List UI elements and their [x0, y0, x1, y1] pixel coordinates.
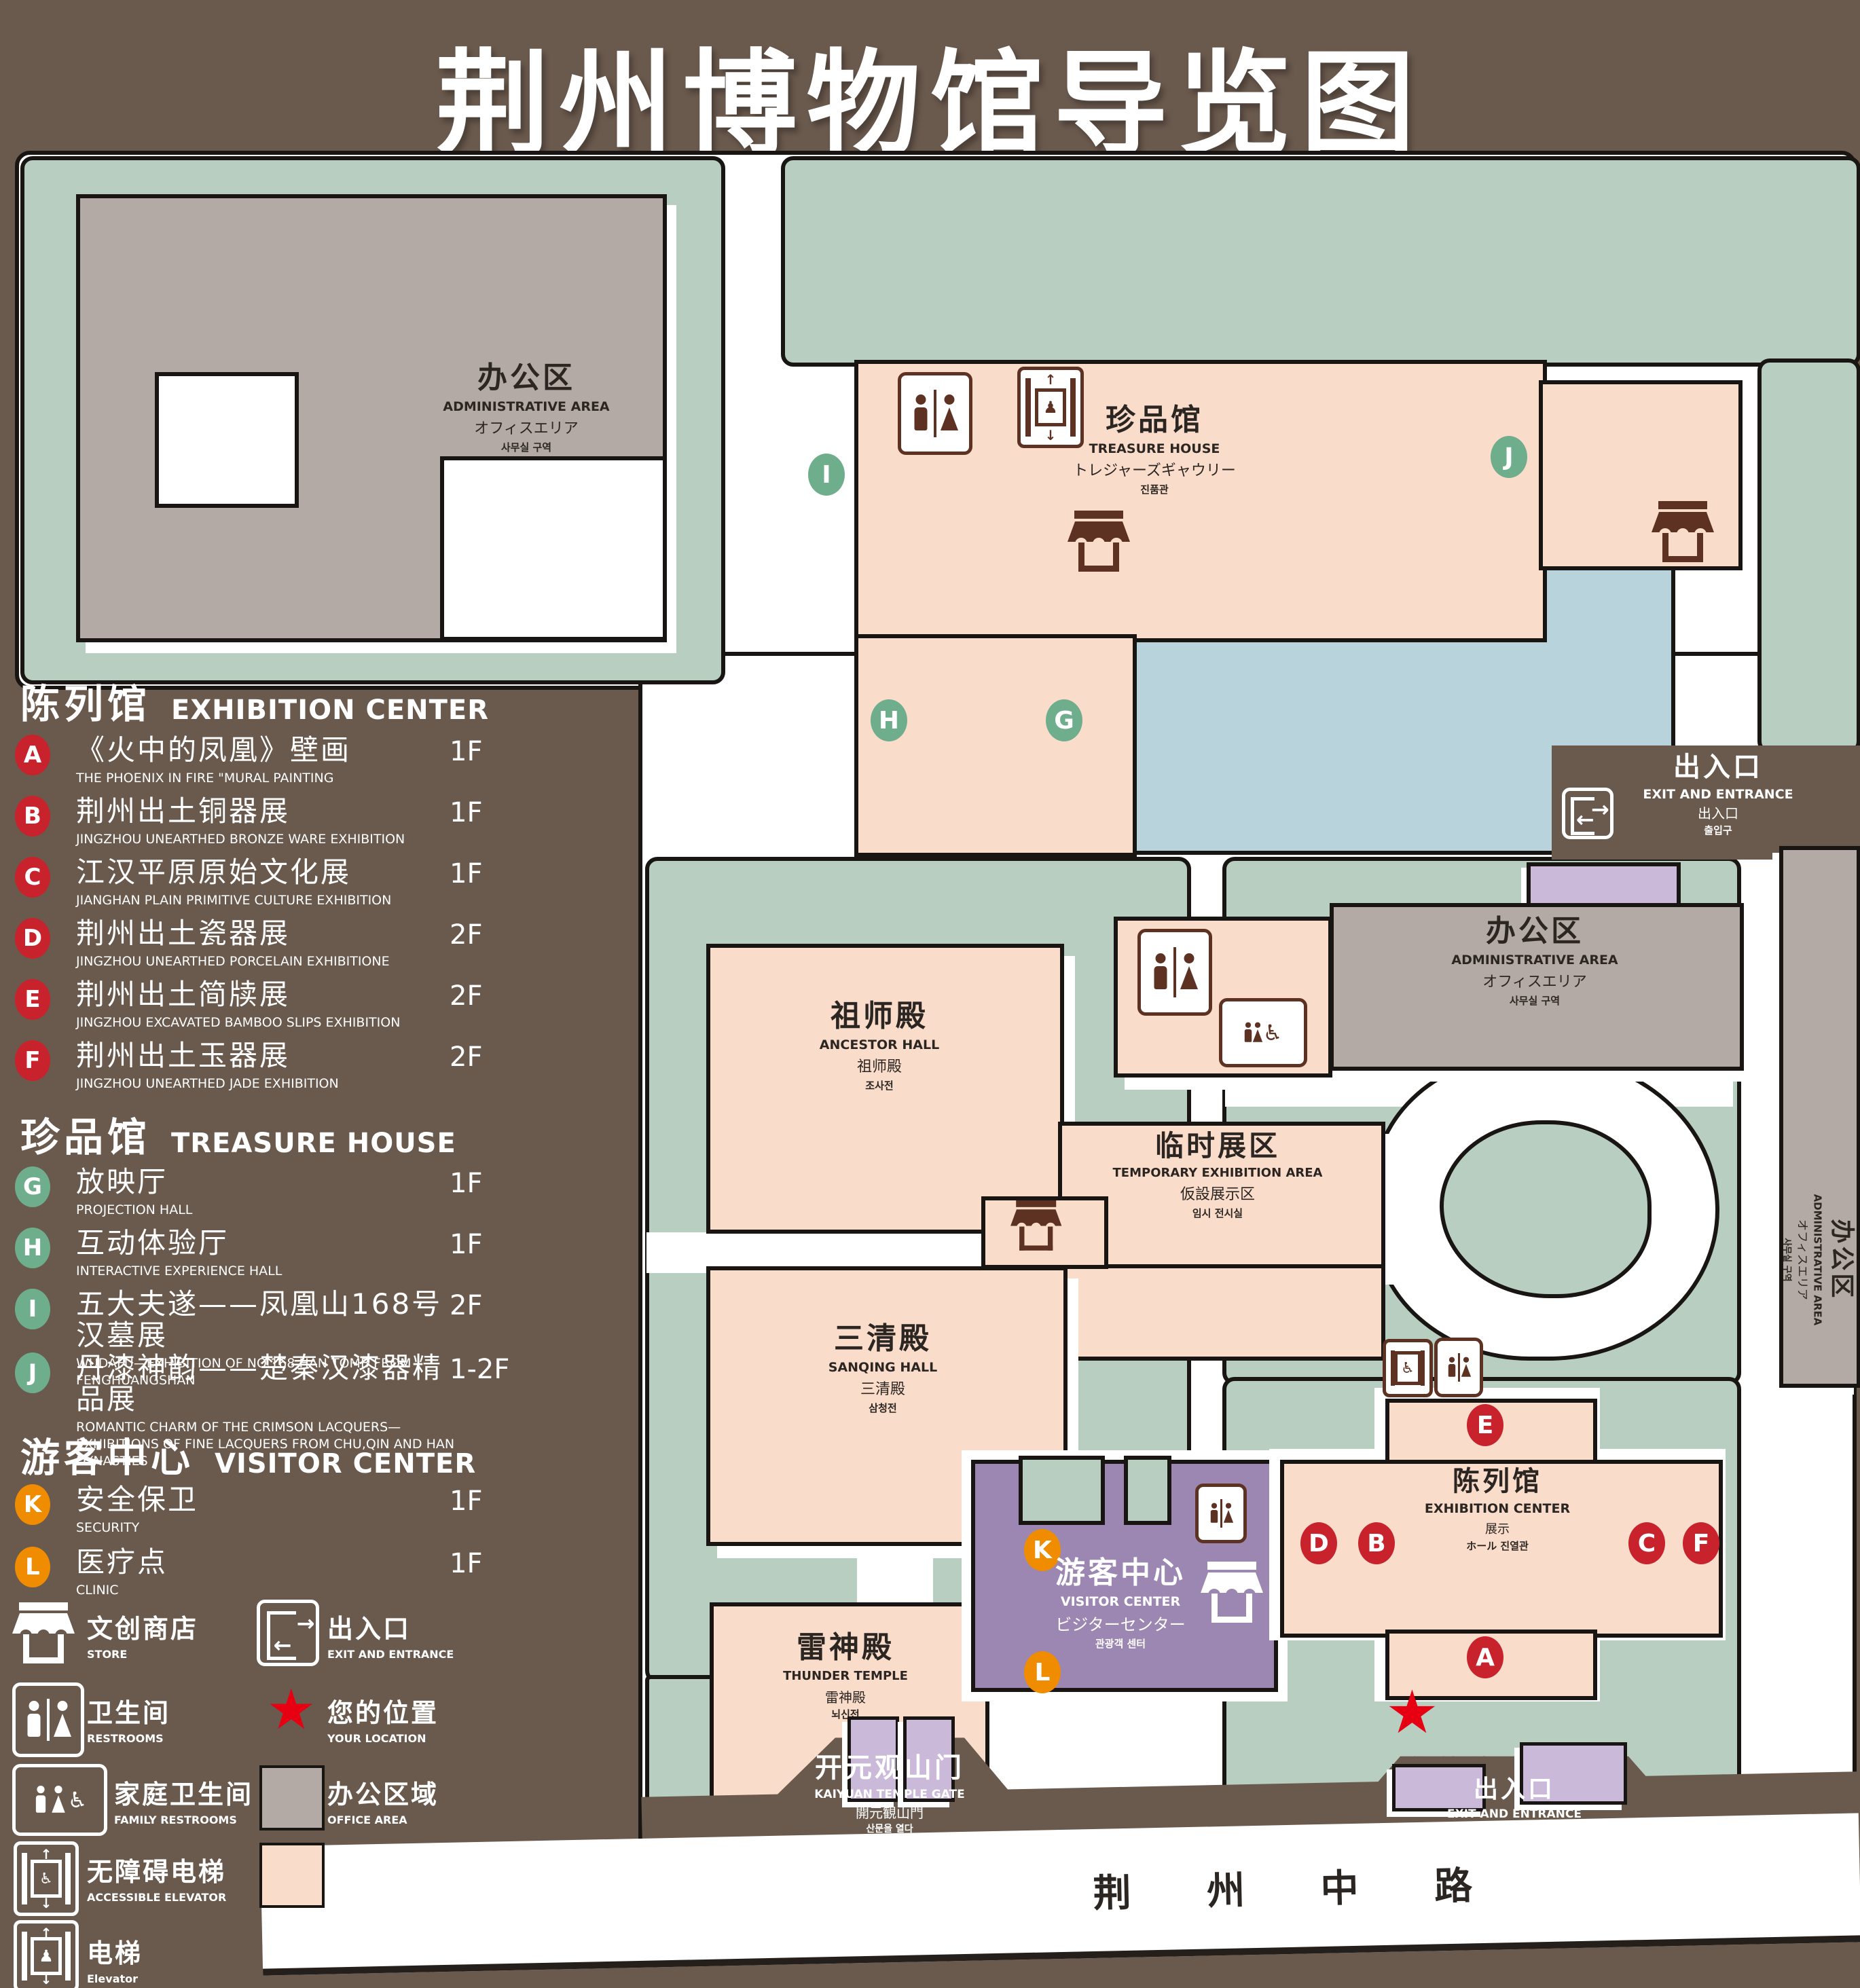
family-restrooms-legend-icon: ♿ [12, 1764, 107, 1836]
store-icon [1201, 1562, 1263, 1623]
temporary-exhibition-label: 临时展区 TEMPORARY EXHIBITION AREA 仮設展示区 임시 … [1065, 1128, 1370, 1219]
map-marker-e: E [1467, 1404, 1503, 1446]
elevator-icon: ↑♟↓ [1017, 367, 1084, 448]
family-restrooms-legend-label: 家庭卫生间FAMILY RESTROOMS [114, 1773, 253, 1826]
badge-h: H [15, 1228, 50, 1268]
map-marker-d: D [1300, 1522, 1337, 1564]
display-area-legend-label: 展示区域DISPLAY AREA [327, 1851, 439, 1904]
exit-legend-icon: →← [257, 1600, 319, 1666]
map-marker-i: I [808, 454, 845, 496]
sanqing-hall-label: 三清殿 SANQING HALL 三清殿 삼청전 [727, 1321, 1039, 1414]
store-icon [1010, 1200, 1061, 1251]
badge-a: A [15, 735, 50, 775]
office-area-swatch [259, 1765, 325, 1830]
man-figure-icon [913, 394, 929, 432]
map-marker-a: A [1467, 1636, 1503, 1678]
admin-center-right-label: 办公区 ADMINISTRATIVE AREA オフィスエリア 사무실 구역 [1379, 913, 1691, 1007]
admin-right-strip-label: 办公区 ADMINISTRATIVE AREA オフィスエリア 사무실 구역 [1781, 1117, 1857, 1402]
legend-item-c: C 江汉平原原始文化展JIANGHAN PLAIN PRIMITIVE CULT… [15, 857, 517, 909]
legend-item-h: H 互动体验厅INTERACTIVE EXPERIENCE HALL 1F [15, 1228, 517, 1280]
display-area-swatch [259, 1843, 325, 1908]
restrooms-icon [1195, 1484, 1247, 1543]
restrooms-legend-icon [12, 1682, 84, 1757]
legend-item-g: G 放映厅PROJECTION HALL 1F [15, 1166, 517, 1219]
map-marker-h: H [871, 699, 907, 741]
your-location-legend-label: 您的位置YOUR LOCATION [327, 1692, 439, 1745]
ancestor-hall-label: 祖师殿 ANCESTOR HALL 祖师殿 조사전 [723, 998, 1036, 1092]
restrooms-icon [898, 372, 972, 455]
admin-top-left-label: 办公区 ADMINISTRATIVE AREA オフィスエリア 사무실 구역 [370, 360, 682, 454]
legend-item-b: B 荆州出土铜器展JINGZHOU UNEARTHED BRONZE WARE … [15, 796, 517, 848]
family-restroom-icon: ♿ [1219, 998, 1307, 1067]
badge-d: D [15, 918, 50, 959]
map-marker-l: L [1024, 1651, 1061, 1693]
map-marker-f: F [1683, 1522, 1719, 1564]
legend-item-k: K 安全保卫SECURITY 1F [15, 1484, 517, 1536]
accessible-elevator-legend-label: 无障碍电梯ACCESSIBLE ELEVATOR [87, 1851, 226, 1904]
your-location-legend-icon: ★ [266, 1682, 316, 1738]
store-legend-icon [12, 1602, 75, 1663]
restrooms-icon [1434, 1338, 1483, 1397]
green-zone-top-right [781, 156, 1860, 367]
legend-item-l: L 医疗点CLINIC 1F [15, 1547, 517, 1599]
guide-map-canvas: 荆州博物馆导览图 GUIDE MAP OF JINGZHOU MUSEUM 办公… [0, 0, 1860, 1988]
legend-section-visitor-center: 游客中心VISITOR CENTER [20, 1426, 476, 1483]
legend-item-a: A 《火中的凤凰》壁画THE PHOENIX IN FIRE "MURAL PA… [15, 735, 517, 787]
badge-k: K [15, 1484, 50, 1525]
badge-g: G [15, 1166, 50, 1207]
legend-section-exhibition-center: 陈列馆EXHIBITION CENTER [20, 672, 489, 729]
map-marker-b: B [1358, 1522, 1395, 1564]
admin-courtyard-1 [155, 372, 299, 508]
accessible-elevator-icon: ♿ [1383, 1339, 1433, 1397]
restrooms-icon [1137, 929, 1212, 1016]
legend-section-treasure-house: 珍品馆TREASURE HOUSE [20, 1105, 456, 1162]
legend-item-d: D 荆州出土瓷器展JINGZHOU UNEARTHED PORCELAIN EX… [15, 918, 517, 970]
exit-legend-label: 出入口EXIT AND ENTRANCE [327, 1608, 454, 1661]
office-area-legend-label: 办公区域OFFICE AREA [327, 1773, 439, 1826]
green-zone-right-column [1757, 358, 1860, 754]
elevator-legend-label: 电梯Elevator [87, 1932, 143, 1985]
store-icon [1068, 511, 1130, 572]
kaiyuan-gate-label: 开元观山门 KAIYUAN TEMPLE GATE 開元観山門 산문을 열다 [747, 1752, 1032, 1835]
woman-figure-icon [941, 394, 958, 432]
badge-e: E [15, 979, 50, 1020]
admin-courtyard-2 [440, 456, 667, 641]
map-marker-g: G [1046, 699, 1082, 741]
map-marker-j: J [1491, 436, 1527, 478]
accessible-elevator-legend-icon: ↑♿↓ [14, 1841, 79, 1916]
exit-icon: →← [1562, 788, 1613, 839]
store-icon [1652, 501, 1714, 562]
visitor-center-notch-1 [1019, 1456, 1105, 1525]
badge-j: J [15, 1352, 50, 1393]
restrooms-legend-label: 卫生间RESTROOMS [87, 1692, 170, 1745]
store-legend-label: 文创商店STORE [87, 1608, 198, 1661]
exit-top-right-label: 出入口 EXIT AND ENTRANCE 出入口 출입구 [1616, 751, 1820, 837]
legend-item-f: F 荆州出土玉器展JINGZHOU UNEARTHED JADE EXHIBIT… [15, 1040, 517, 1092]
badge-b: B [15, 796, 50, 836]
map-marker-c: C [1628, 1522, 1665, 1564]
road-name: 荆 州 中 路 [1093, 1854, 1504, 1918]
badge-f: F [15, 1040, 50, 1081]
badge-l: L [15, 1547, 50, 1587]
elevator-legend-icon: ↑♟↓ [14, 1920, 79, 1988]
legend-item-e: E 荆州出土简牍展JINGZHOU EXCAVATED BAMBOO SLIPS… [15, 979, 517, 1031]
badge-c: C [15, 857, 50, 898]
your-location-star-icon: ★ [1385, 1682, 1439, 1742]
badge-i: I [15, 1289, 50, 1329]
road-jingzhou-middle: 荆 州 中 路 [260, 1813, 1860, 1975]
thunder-temple-label: 雷神殿 THUNDER TEMPLE 雷神殿 뇌신전 [689, 1630, 1002, 1720]
building-treasure-house-south [854, 634, 1137, 857]
visitor-center-notch-2 [1124, 1456, 1171, 1525]
